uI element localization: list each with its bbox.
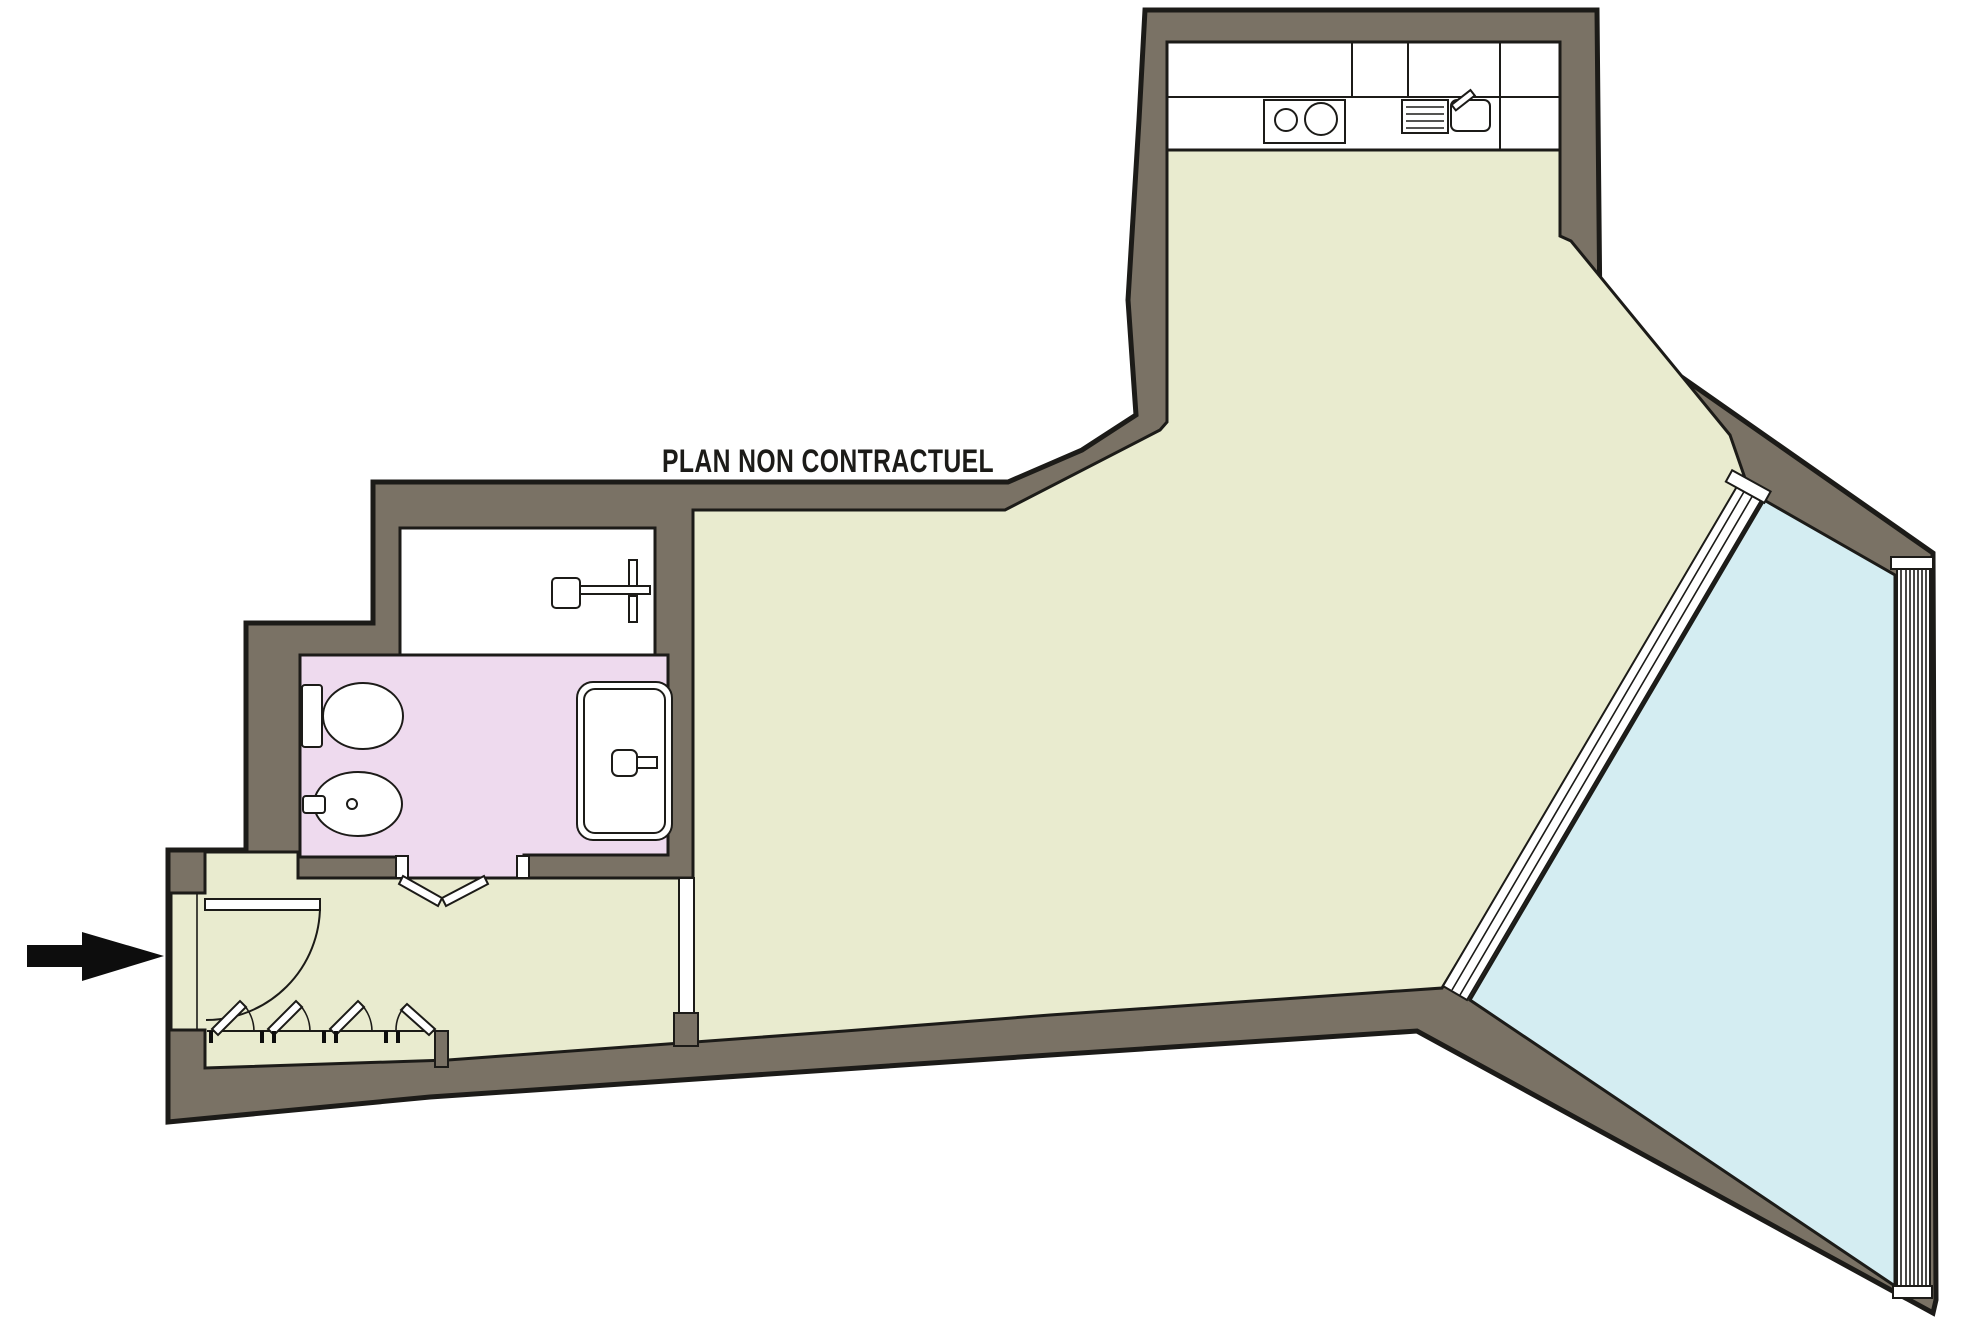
floor-plan-page: PLAN NON CONTRACTUEL (0, 0, 1961, 1333)
entry-door-leaf (205, 899, 320, 910)
door-jamb (396, 856, 408, 878)
plan-disclaimer: PLAN NON CONTRACTUEL (662, 443, 994, 479)
bathtub-icon (577, 682, 672, 840)
toilet-icon (302, 683, 403, 749)
kitchen (1167, 42, 1560, 150)
terrace-railing (1891, 557, 1933, 1298)
door-jamb (517, 856, 529, 878)
wall-stub (674, 1013, 698, 1046)
floor-plan: PLAN NON CONTRACTUEL (0, 0, 1961, 1333)
entry-arrow-icon (27, 932, 164, 981)
cooktop-icon (1264, 100, 1345, 143)
wall-stub (435, 1031, 448, 1067)
